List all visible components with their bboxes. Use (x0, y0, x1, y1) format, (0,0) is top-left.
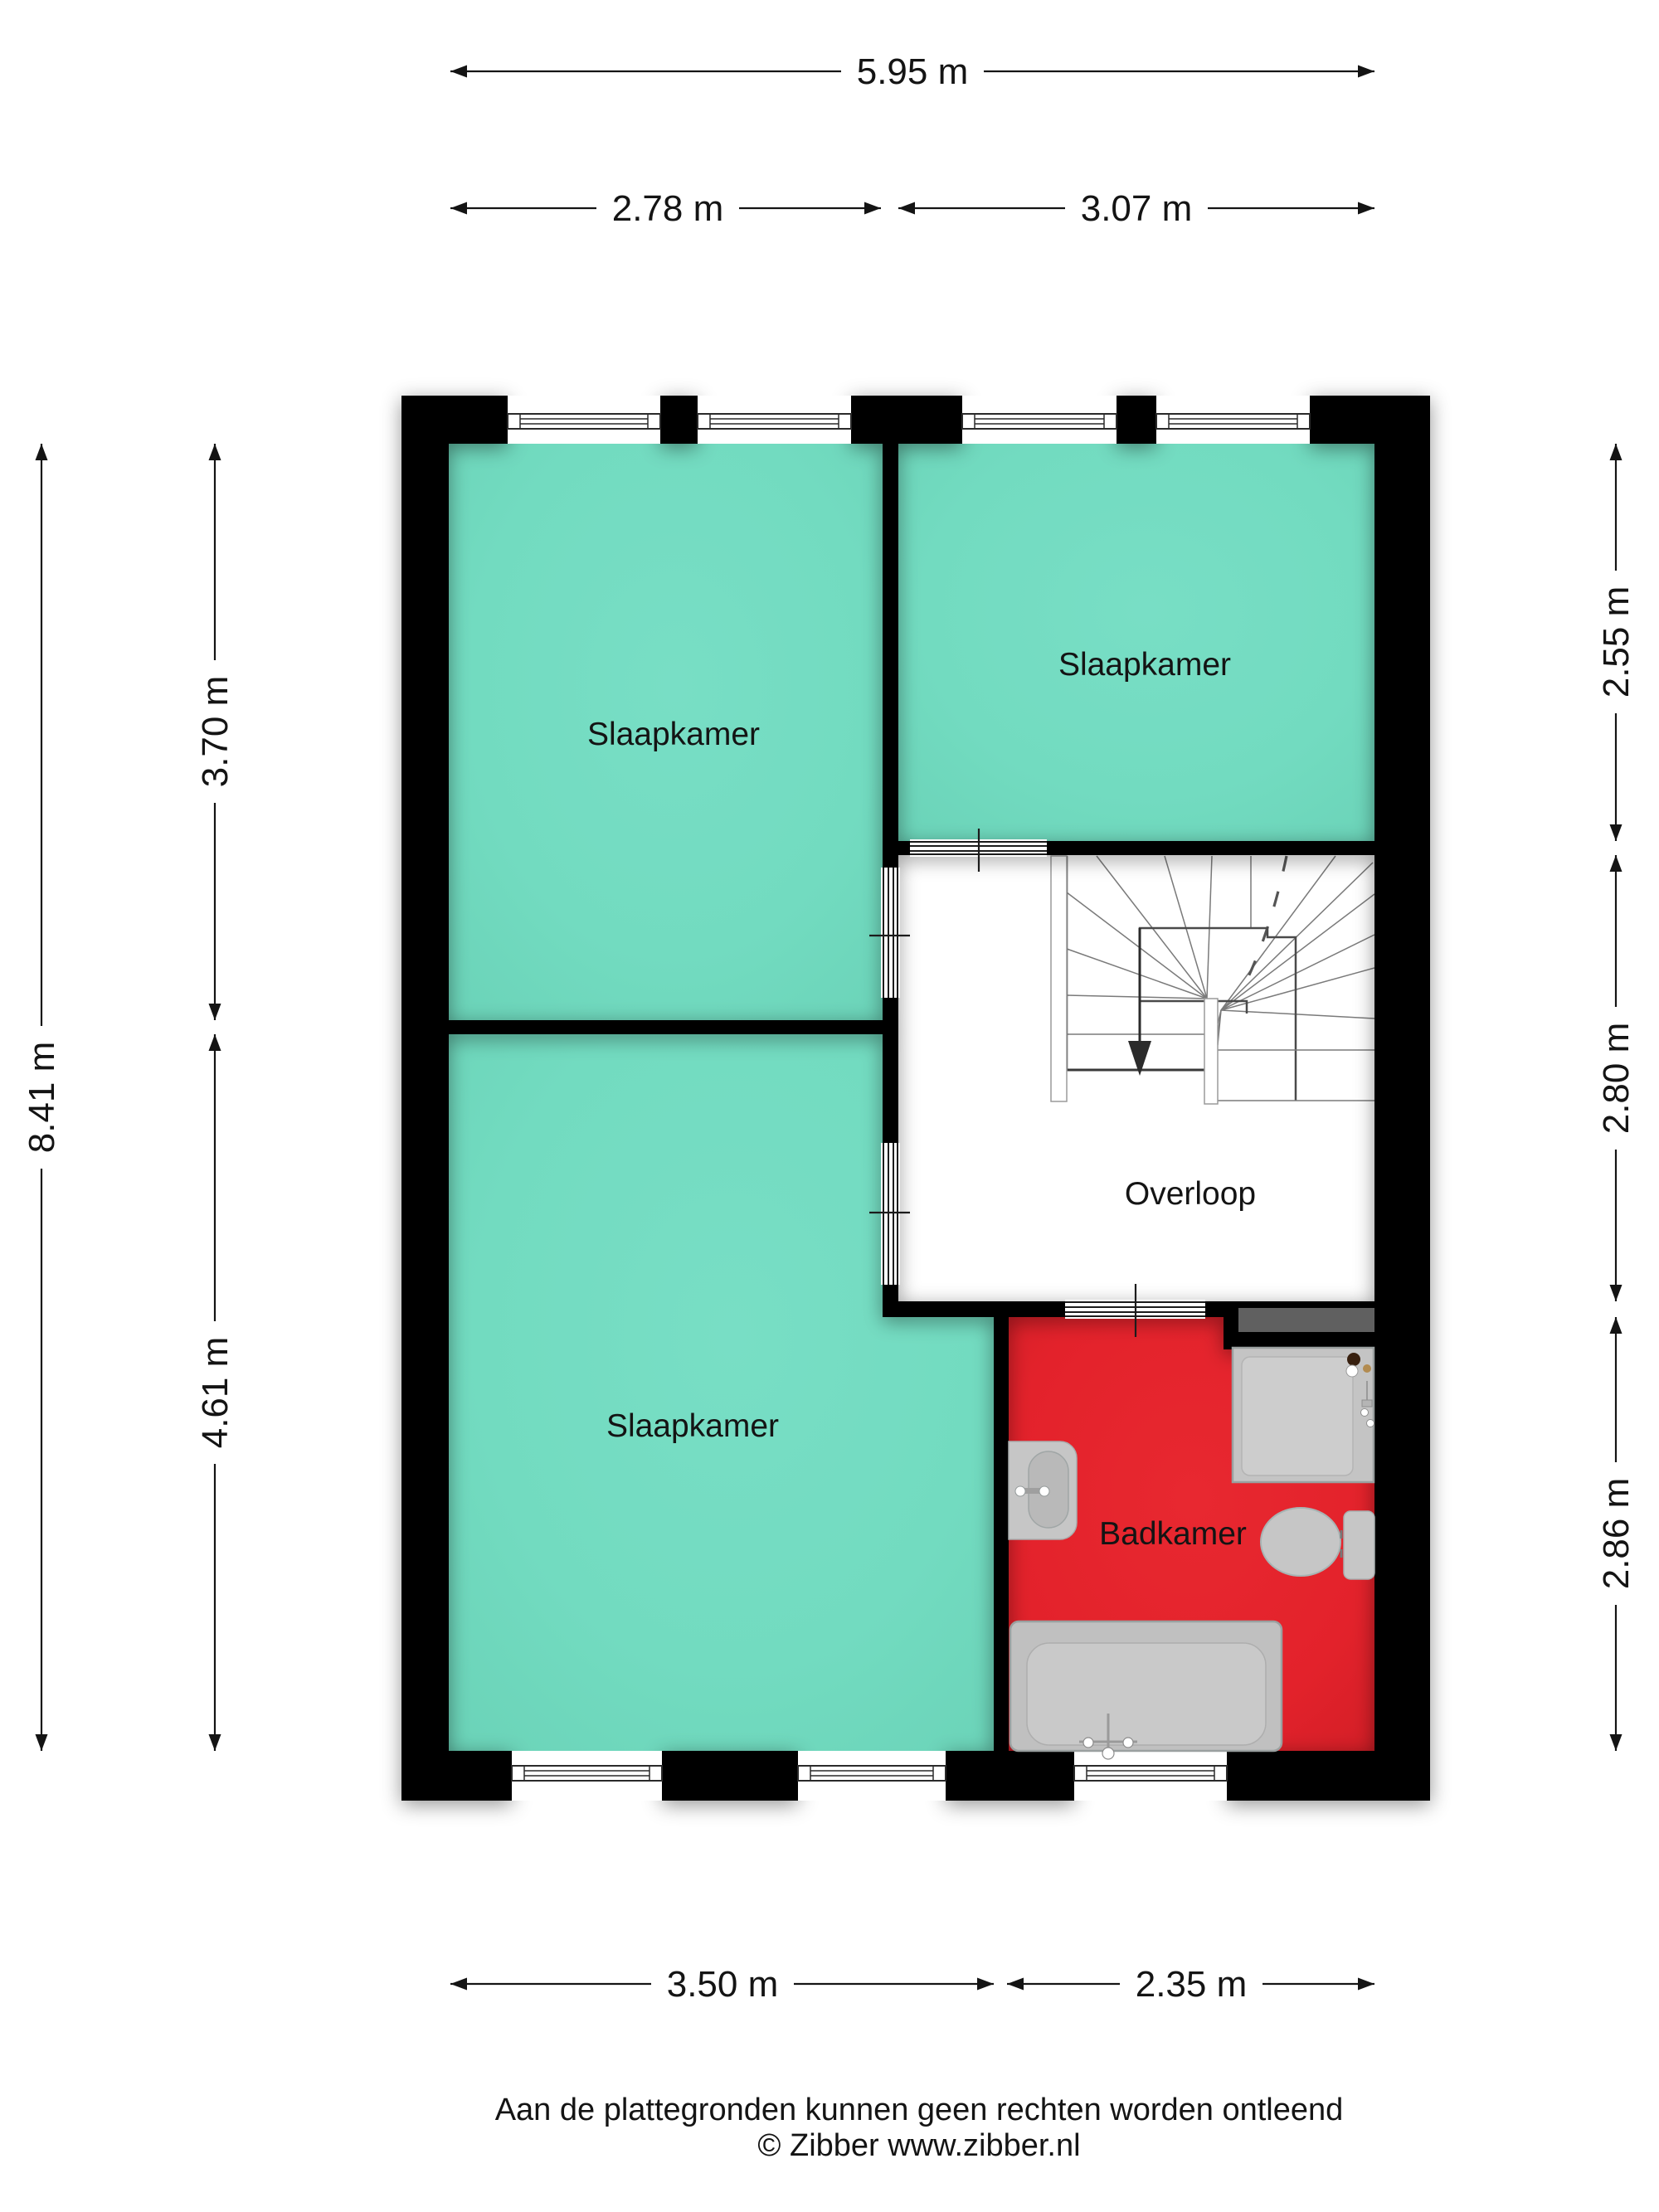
svg-text:Slaapkamer: Slaapkamer (1058, 647, 1231, 683)
svg-text:Aan de plattegronden kunnen ge: Aan de plattegronden kunnen geen rechten… (495, 2093, 1344, 2127)
svg-text:3.70 m: 3.70 m (195, 676, 236, 788)
svg-text:4.61 m: 4.61 m (195, 1337, 236, 1449)
svg-text:3.50 m: 3.50 m (667, 1964, 779, 2005)
svg-text:2.35 m: 2.35 m (1136, 1964, 1248, 2005)
svg-text:2.86 m: 2.86 m (1596, 1478, 1637, 1590)
svg-text:© Zibber www.zibber.nl: © Zibber www.zibber.nl (757, 2128, 1080, 2163)
svg-text:2.55 m: 2.55 m (1596, 586, 1637, 698)
svg-text:2.78 m: 2.78 m (612, 188, 724, 229)
svg-text:Slaapkamer: Slaapkamer (606, 1408, 779, 1444)
svg-text:2.80 m: 2.80 m (1596, 1023, 1637, 1135)
svg-text:Overloop: Overloop (1125, 1176, 1256, 1212)
svg-text:Slaapkamer: Slaapkamer (587, 717, 760, 752)
svg-text:Badkamer: Badkamer (1099, 1516, 1247, 1552)
svg-text:3.07 m: 3.07 m (1081, 188, 1193, 229)
svg-text:8.41 m: 8.41 m (22, 1042, 62, 1154)
svg-text:5.95 m: 5.95 m (857, 51, 969, 92)
